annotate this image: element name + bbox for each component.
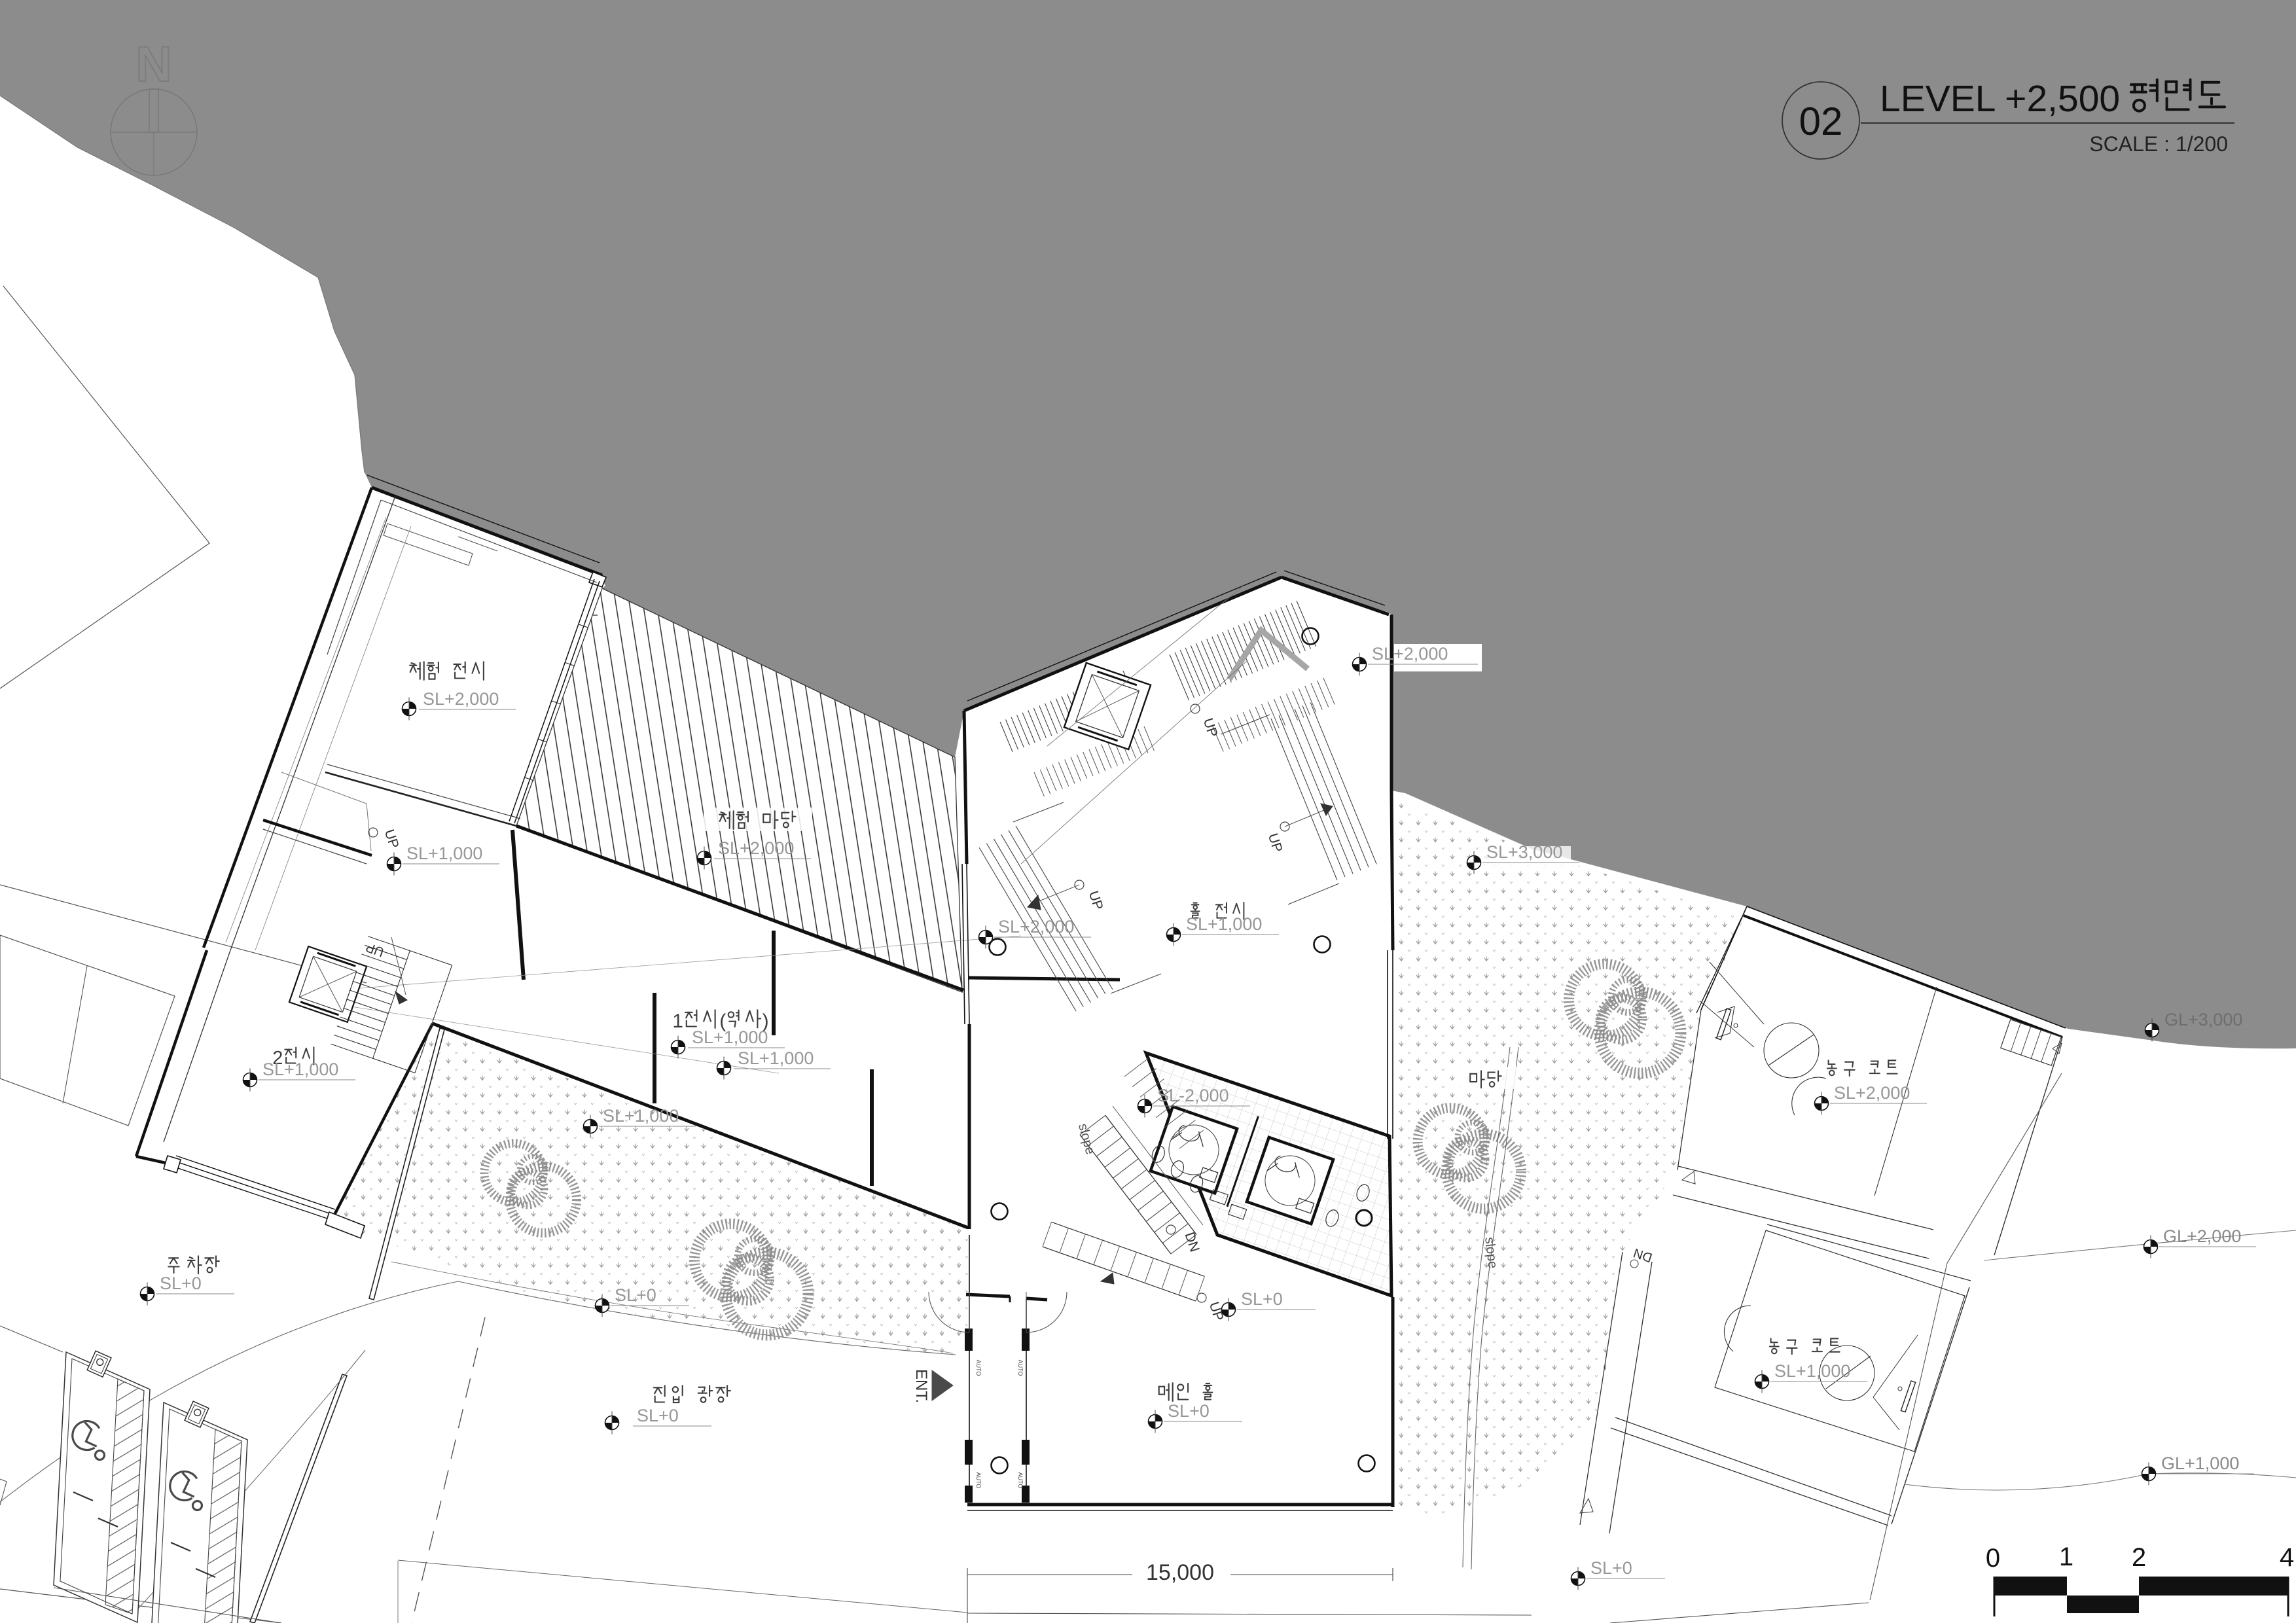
svg-text:SL+2,000: SL+2,000 (423, 689, 499, 709)
svg-text:AUTO: AUTO (1017, 1360, 1024, 1376)
svg-text:SL+1,000: SL+1,000 (692, 1027, 768, 1047)
svg-text:SL+2,000: SL+2,000 (1372, 644, 1448, 664)
svg-text:SL+0: SL+0 (637, 1406, 679, 1425)
svg-text:SL+1,000: SL+1,000 (406, 844, 482, 863)
svg-text:SL+1,000: SL+1,000 (1186, 914, 1262, 934)
svg-text:1: 1 (672, 1010, 683, 1032)
svg-text:SL+0: SL+0 (1168, 1401, 1210, 1421)
svg-text:SCALE : 1/200: SCALE : 1/200 (2089, 132, 2228, 156)
svg-text:N: N (136, 37, 172, 92)
svg-text:GL+2,000: GL+2,000 (2163, 1226, 2241, 1246)
svg-text:AUTO: AUTO (975, 1472, 982, 1489)
svg-text:15,000: 15,000 (1146, 1560, 1214, 1585)
svg-text:GL+3,000: GL+3,000 (2164, 1010, 2242, 1029)
svg-text:SL+1,000: SL+1,000 (738, 1048, 814, 1068)
svg-text:SL+2,000: SL+2,000 (1834, 1083, 1910, 1103)
svg-text:02: 02 (1799, 99, 1843, 143)
svg-text:SL+0: SL+0 (1241, 1289, 1283, 1309)
svg-text:SL+3,000: SL+3,000 (1486, 842, 1562, 862)
svg-text:2: 2 (2132, 1543, 2146, 1572)
svg-text:AUTO: AUTO (1017, 1472, 1024, 1489)
svg-text:SL+1,000: SL+1,000 (262, 1060, 338, 1079)
svg-text:LEVEL +2,500: LEVEL +2,500 (1880, 78, 2120, 120)
svg-text:SL-2,000: SL-2,000 (1157, 1086, 1229, 1105)
svg-text:AUTO: AUTO (975, 1360, 982, 1376)
svg-text:0: 0 (1986, 1544, 2000, 1573)
svg-text:SL+1,000: SL+1,000 (603, 1106, 679, 1126)
svg-text:SL+0: SL+0 (160, 1274, 202, 1293)
svg-text:SL+1,000: SL+1,000 (1774, 1361, 1850, 1381)
svg-text:SL+2,000: SL+2,000 (998, 917, 1074, 936)
svg-text:4: 4 (2280, 1543, 2294, 1572)
svg-text:ENT.: ENT. (912, 1369, 930, 1403)
svg-text:SL+0: SL+0 (1590, 1558, 1632, 1578)
svg-text:GL+1,000: GL+1,000 (2161, 1454, 2239, 1473)
svg-text:SL+2,000: SL+2,000 (718, 838, 794, 858)
svg-text:1: 1 (2059, 1543, 2073, 1571)
svg-text:SL+0: SL+0 (615, 1285, 656, 1305)
